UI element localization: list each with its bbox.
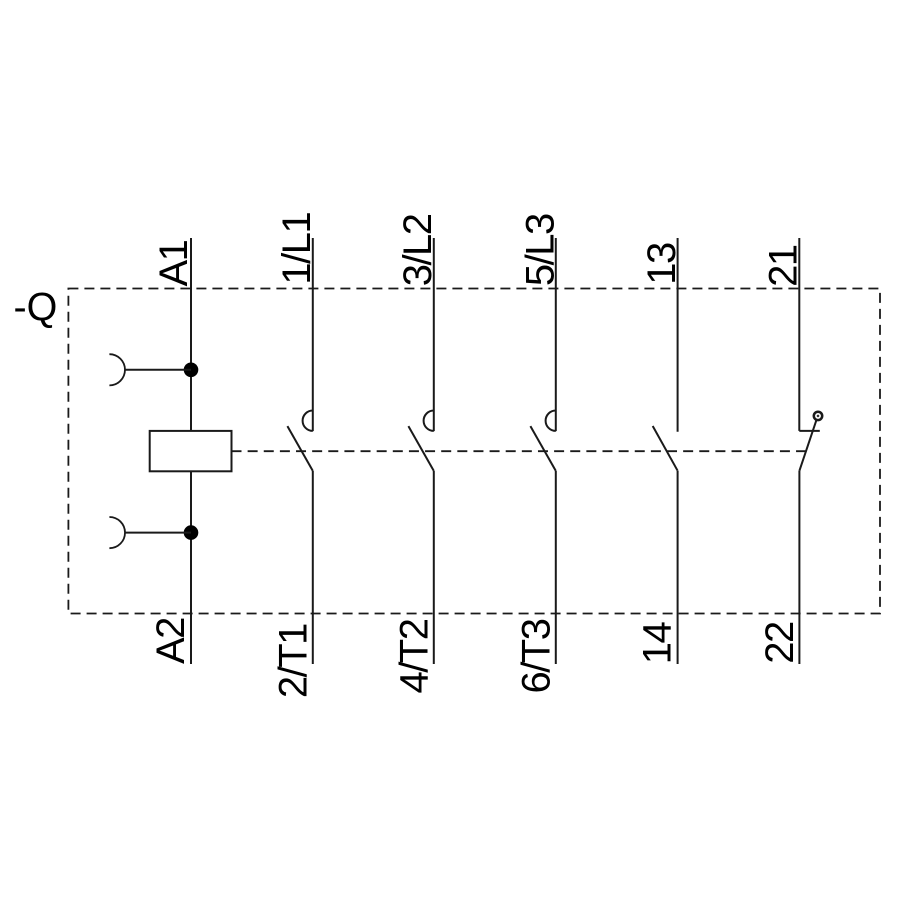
svg-text:A1: A1 xyxy=(152,240,196,286)
svg-text:6/T3: 6/T3 xyxy=(514,619,558,693)
svg-text:14: 14 xyxy=(636,621,680,664)
svg-text:2/T1: 2/T1 xyxy=(271,624,315,698)
svg-text:-Q: -Q xyxy=(14,286,58,330)
svg-text:22: 22 xyxy=(758,622,802,664)
svg-text:A2: A2 xyxy=(149,618,193,664)
svg-text:4/T2: 4/T2 xyxy=(393,619,437,693)
